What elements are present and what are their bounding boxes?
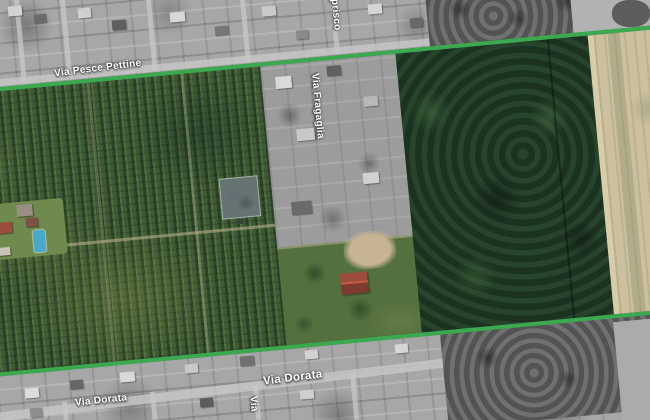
dark-grove-blob — [612, 0, 650, 27]
building-roof — [300, 389, 315, 399]
building-roof — [368, 3, 383, 14]
building-roof — [275, 76, 292, 89]
building-roof — [185, 363, 199, 373]
farm-building — [0, 247, 11, 256]
bare-dirt-patch — [342, 229, 397, 272]
building-roof — [395, 343, 409, 353]
pond-shed — [236, 219, 243, 225]
woodland — [395, 35, 616, 332]
greyscale-residential-cluster — [260, 54, 415, 250]
building-roof — [170, 11, 186, 22]
woodland-track — [547, 39, 575, 318]
building-roof — [30, 407, 43, 417]
building-roof — [8, 5, 23, 16]
map-canvas[interactable]: Via Pesce Pettine aprisco Via Fragaglia … — [0, 0, 650, 420]
irrigation-pond — [218, 175, 261, 219]
red-roof-house — [340, 271, 369, 294]
building-roof — [112, 19, 127, 30]
building-roof — [296, 128, 315, 142]
building-roof — [25, 387, 40, 398]
building-roof — [70, 379, 84, 389]
farm-building — [25, 217, 38, 227]
building-roof — [240, 355, 255, 366]
building-roof — [200, 397, 214, 407]
swimming-pool — [32, 230, 46, 253]
building-roof — [120, 371, 136, 382]
farm-building — [16, 204, 33, 217]
building-roof — [291, 200, 312, 215]
building-roof — [34, 13, 47, 23]
building-roof — [78, 7, 92, 18]
building-roof — [363, 172, 380, 184]
street-label-via-partial: Via — [247, 396, 259, 413]
building-roof — [410, 17, 424, 27]
building-roof — [262, 5, 277, 16]
building-roof — [363, 96, 378, 107]
building-roof — [326, 65, 341, 76]
building-roof — [215, 25, 229, 35]
building-roof — [296, 29, 309, 39]
building-roof — [305, 349, 319, 359]
farm-building-red-roof — [0, 222, 13, 234]
